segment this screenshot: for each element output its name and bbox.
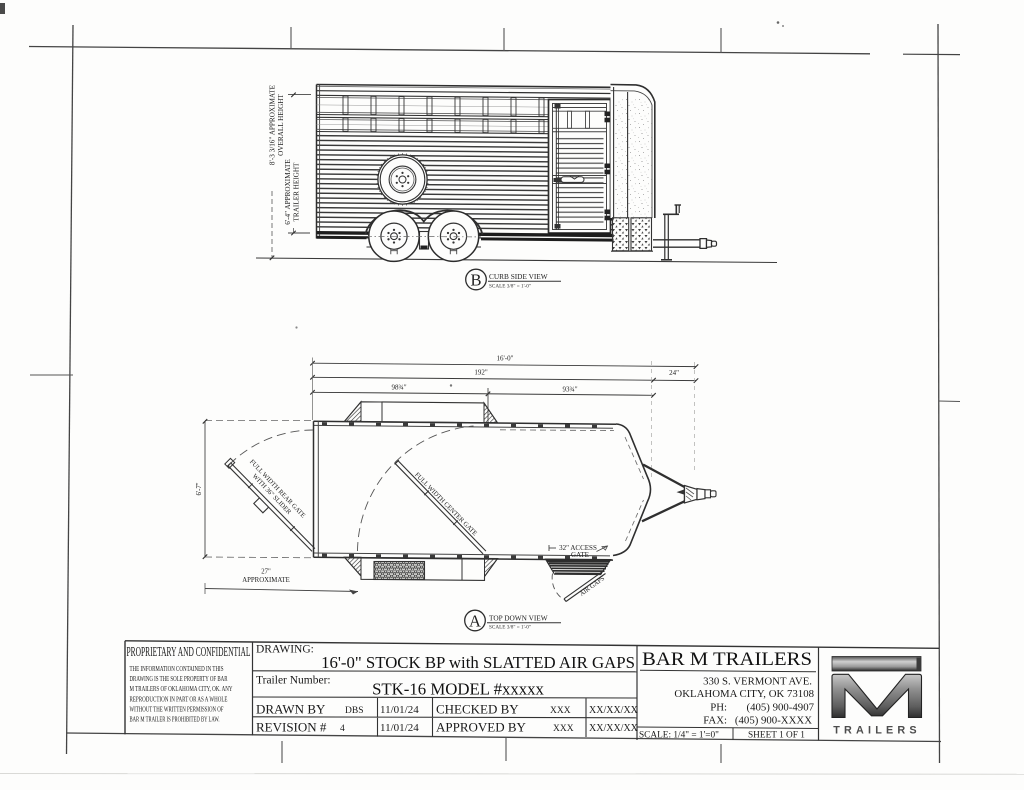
svg-text:16'-0" STOCK BP with SLATTED A: 16'-0" STOCK BP with SLATTED AIR GAPS [321,653,635,672]
svg-text:A: A [469,612,481,631]
svg-text:B: B [470,271,481,290]
svg-text:Trailer Number:: Trailer Number: [256,675,331,687]
svg-text:330 S. VERMONT AVE.: 330 S. VERMONT AVE. [703,676,812,688]
svg-text:REVISION #: REVISION # [256,720,327,735]
svg-text:BAR M TRAILERS: BAR M TRAILERS [642,650,812,670]
svg-text:8'-3 3/16" APPROXIMATE: 8'-3 3/16" APPROXIMATE [269,84,277,165]
svg-text:FAX:: FAX: [703,715,727,727]
svg-text:6'-7": 6'-7" [196,482,203,495]
svg-text:PH:: PH: [710,702,727,714]
svg-text:SCALE 3/8" = 1'-0": SCALE 3/8" = 1'-0" [489,283,531,289]
svg-text:16'-0": 16'-0" [497,355,514,363]
svg-text:CHECKED BY: CHECKED BY [436,702,519,717]
svg-text:THE INFORMATION CONTAINED IN T: THE INFORMATION CONTAINED IN THIS [130,664,224,673]
svg-text:DRAWING:: DRAWING: [256,644,314,656]
svg-text:XXX: XXX [550,706,571,716]
svg-text:PROPRIETARY AND CONFIDENTIAL: PROPRIETARY AND CONFIDENTIAL [127,644,251,659]
svg-text:M TRAILERS OF OKLAHOMA CITY, O: M TRAILERS OF OKLAHOMA CITY, OK. ANY [130,684,233,693]
svg-text:WITHOUT THE WRITTEN PERMISSION: WITHOUT THE WRITTEN PERMISSION OF [130,704,224,713]
svg-text:93¾": 93¾" [562,385,577,393]
svg-text:TRAILERS: TRAILERS [833,725,921,737]
svg-text:FULL WIDTH CENTER GATE: FULL WIDTH CENTER GATE [413,471,478,537]
svg-text:GATE: GATE [571,551,589,559]
svg-text:CURB SIDE VIEW: CURB SIDE VIEW [489,272,548,281]
svg-text:24": 24" [669,369,679,377]
svg-text:(405) 900-XXXX: (405) 900-XXXX [735,715,812,727]
svg-text:APPROXIMATE: APPROXIMATE [242,577,290,584]
svg-text:OVERALL HEIGHT: OVERALL HEIGHT [277,93,285,155]
svg-text:98¾": 98¾" [391,383,406,391]
svg-text:REPRODUCTION IN PART OR AS A W: REPRODUCTION IN PART OR AS A WHOLE [130,694,228,703]
svg-text:APPROVED BY: APPROVED BY [436,720,527,735]
svg-text:XX/XX/XX: XX/XX/XX [589,705,639,716]
svg-text:27": 27" [261,569,271,576]
svg-text:TRAILER HEIGHT: TRAILER HEIGHT [293,162,301,221]
svg-text:DRAWN BY: DRAWN BY [256,702,326,717]
svg-text:6'-4" APPROXIMATE: 6'-4" APPROXIMATE [284,159,292,225]
svg-text:DRAWING IS THE SOLE PROPERTY O: DRAWING IS THE SOLE PROPERTY OF BAR [130,674,228,683]
svg-text:11/01/24: 11/01/24 [380,704,419,716]
svg-text:(405) 900-4907: (405) 900-4907 [747,702,815,714]
svg-text:SCALE 3/8" = 1'-0": SCALE 3/8" = 1'-0" [489,625,531,631]
svg-text:192": 192" [474,369,488,377]
svg-text:XXX: XXX [553,724,574,734]
svg-text:OKLAHOMA CITY, OK 73108: OKLAHOMA CITY, OK 73108 [674,688,814,700]
svg-text:DBS: DBS [345,706,363,716]
svg-text:SCALE: 1/4" = 1'=0": SCALE: 1/4" = 1'=0" [639,730,719,740]
svg-text:XX/XX/XX: XX/XX/XX [589,723,639,734]
svg-text:BAR M TRAILER IS PROHIBITED BY: BAR M TRAILER IS PROHIBITED BY LAW. [130,715,220,724]
svg-text:STK-16 MODEL #xxxxx: STK-16 MODEL #xxxxx [372,680,544,699]
svg-text:SHEET 1 OF 1: SHEET 1 OF 1 [748,731,805,741]
svg-text:TOP DOWN VIEW: TOP DOWN VIEW [489,613,548,622]
svg-text:11/01/24: 11/01/24 [380,722,419,734]
svg-text:4: 4 [340,724,345,734]
